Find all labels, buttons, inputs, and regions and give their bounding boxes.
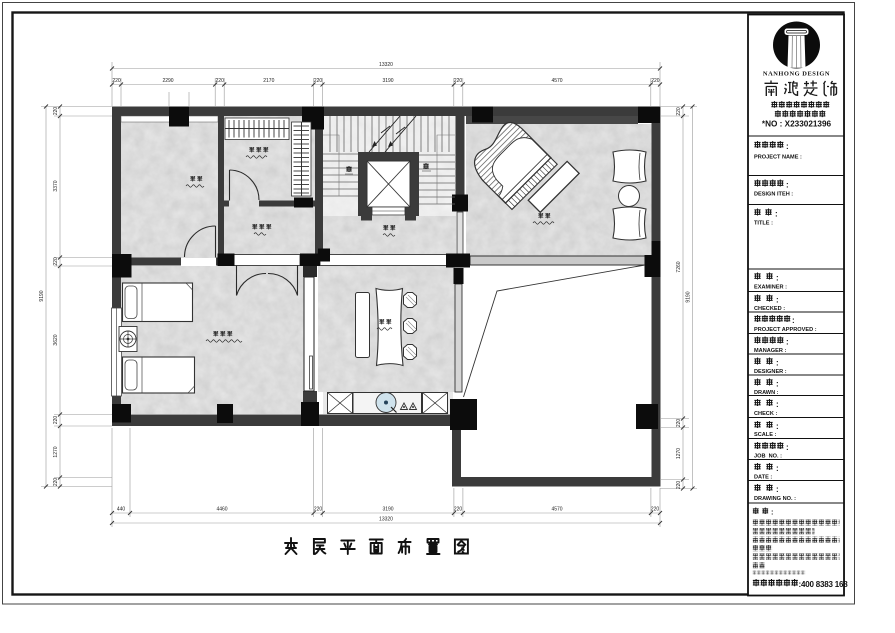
svg-text::: : bbox=[776, 422, 779, 431]
svg-text:220: 220 bbox=[676, 419, 682, 428]
svg-text::: : bbox=[771, 508, 774, 517]
svg-text:CHECKED :: CHECKED : bbox=[754, 306, 785, 312]
svg-text::: : bbox=[776, 464, 779, 473]
svg-text:220: 220 bbox=[314, 507, 323, 513]
svg-text:4460: 4460 bbox=[216, 507, 227, 513]
svg-text::: : bbox=[786, 180, 789, 189]
svg-text::: : bbox=[776, 295, 779, 304]
svg-text:NANHONG DESIGN: NANHONG DESIGN bbox=[763, 71, 830, 78]
svg-text::: : bbox=[792, 316, 795, 325]
svg-text:3190: 3190 bbox=[382, 78, 393, 84]
svg-text::: : bbox=[786, 142, 789, 151]
svg-text:3370: 3370 bbox=[53, 180, 59, 191]
svg-text:220: 220 bbox=[454, 507, 463, 513]
svg-text:220: 220 bbox=[112, 78, 121, 84]
svg-text:220: 220 bbox=[53, 416, 59, 425]
svg-text:220: 220 bbox=[676, 481, 682, 490]
svg-text:1270: 1270 bbox=[53, 446, 59, 457]
svg-text:PROJECT NAME :: PROJECT NAME : bbox=[754, 155, 802, 161]
svg-text::: : bbox=[776, 379, 779, 388]
svg-text::: : bbox=[776, 273, 779, 282]
svg-text:SCALE :: SCALE : bbox=[754, 432, 777, 438]
svg-text::: : bbox=[775, 209, 778, 218]
svg-text:PROJECT APPROVED :: PROJECT APPROVED : bbox=[754, 327, 817, 333]
svg-text::400 8383 168: :400 8383 168 bbox=[799, 580, 849, 589]
svg-text:13320: 13320 bbox=[379, 517, 393, 523]
svg-text:3190: 3190 bbox=[382, 507, 393, 513]
svg-text:DESIGN ITEH :: DESIGN ITEH : bbox=[754, 192, 793, 198]
svg-text:4570: 4570 bbox=[551, 507, 562, 513]
svg-text:220: 220 bbox=[53, 478, 59, 487]
svg-text:CHECK :: CHECK : bbox=[754, 411, 777, 417]
svg-text:1270: 1270 bbox=[676, 448, 682, 459]
svg-text::: : bbox=[786, 337, 789, 346]
svg-text:JOB NO. :: JOB NO. : bbox=[754, 453, 782, 459]
svg-text:9190: 9190 bbox=[686, 291, 692, 302]
svg-text:DRAWING NO. :: DRAWING NO. : bbox=[754, 496, 796, 502]
svg-text::: : bbox=[776, 358, 779, 367]
svg-text:220: 220 bbox=[216, 78, 225, 84]
svg-text:220: 220 bbox=[676, 107, 682, 116]
svg-text:13320: 13320 bbox=[379, 62, 393, 68]
svg-text:220: 220 bbox=[651, 78, 660, 84]
svg-text:DESIGNER :: DESIGNER : bbox=[754, 369, 787, 375]
svg-text::: : bbox=[776, 485, 779, 494]
svg-text:MANAGER :: MANAGER : bbox=[754, 348, 786, 354]
svg-text:DRAWN :: DRAWN : bbox=[754, 390, 779, 396]
svg-text:4570: 4570 bbox=[551, 78, 562, 84]
svg-text:2170: 2170 bbox=[263, 78, 274, 84]
svg-text:7260: 7260 bbox=[676, 261, 682, 272]
svg-text:2290: 2290 bbox=[162, 78, 173, 84]
svg-text:220: 220 bbox=[454, 78, 463, 84]
svg-text:DATE :: DATE : bbox=[754, 474, 772, 480]
svg-text:*NO : X233021396: *NO : X233021396 bbox=[762, 120, 832, 129]
svg-text:220: 220 bbox=[314, 78, 323, 84]
svg-text::: : bbox=[776, 400, 779, 409]
svg-text:440: 440 bbox=[117, 507, 126, 513]
svg-text:EXAMINER :: EXAMINER : bbox=[754, 284, 787, 290]
svg-text:220: 220 bbox=[53, 257, 59, 266]
svg-text:220: 220 bbox=[651, 507, 660, 513]
svg-text:220: 220 bbox=[53, 107, 59, 116]
svg-text:TITLE :: TITLE : bbox=[754, 221, 773, 227]
svg-text::: : bbox=[786, 443, 789, 452]
svg-text:9190: 9190 bbox=[39, 290, 45, 301]
svg-text:3620: 3620 bbox=[53, 334, 59, 345]
